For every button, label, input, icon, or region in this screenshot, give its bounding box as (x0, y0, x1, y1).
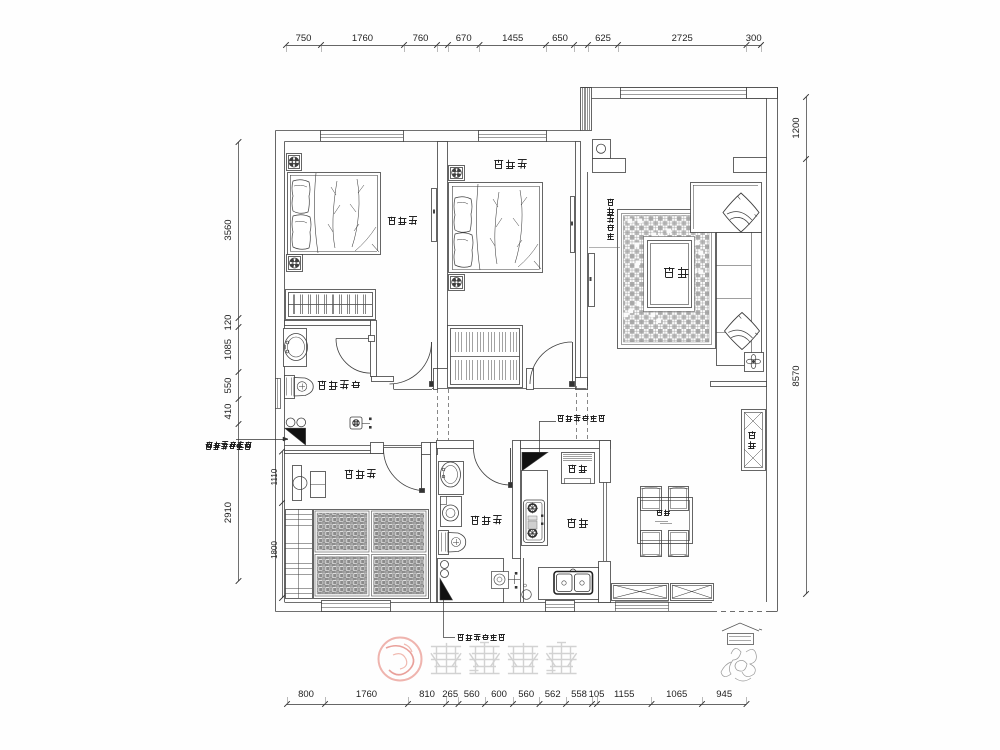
svg-text:550: 550 (223, 378, 234, 394)
svg-text:600: 600 (491, 689, 507, 700)
svg-text:760: 760 (413, 33, 429, 44)
svg-text:2725: 2725 (672, 33, 693, 44)
svg-text:1155: 1155 (614, 689, 634, 700)
svg-text:810: 810 (419, 689, 435, 700)
svg-text:3560: 3560 (223, 219, 234, 240)
svg-text:560: 560 (518, 689, 534, 700)
svg-text:625: 625 (595, 33, 611, 44)
svg-text:650: 650 (552, 33, 568, 44)
svg-text:670: 670 (456, 33, 472, 44)
svg-text:1760: 1760 (352, 33, 373, 44)
svg-text:1455: 1455 (502, 33, 523, 44)
svg-text:300: 300 (746, 33, 762, 44)
svg-text:558: 558 (571, 689, 587, 700)
svg-text:8570: 8570 (791, 365, 802, 386)
svg-text:945: 945 (716, 689, 732, 700)
svg-text:410: 410 (223, 404, 234, 420)
svg-text:1110: 1110 (270, 468, 279, 485)
svg-text:265: 265 (442, 689, 458, 700)
svg-text:1800: 1800 (270, 541, 279, 559)
svg-text:1065: 1065 (666, 689, 687, 700)
svg-text:800: 800 (298, 689, 314, 700)
svg-text:1760: 1760 (356, 689, 377, 700)
svg-text:562: 562 (545, 689, 561, 700)
svg-text:2910: 2910 (223, 502, 234, 523)
svg-text:750: 750 (296, 33, 312, 44)
svg-text:105: 105 (589, 689, 605, 700)
svg-text:1085: 1085 (223, 339, 234, 360)
svg-text:1200: 1200 (791, 117, 802, 138)
svg-text:560: 560 (464, 689, 480, 700)
svg-text:120: 120 (223, 315, 234, 331)
